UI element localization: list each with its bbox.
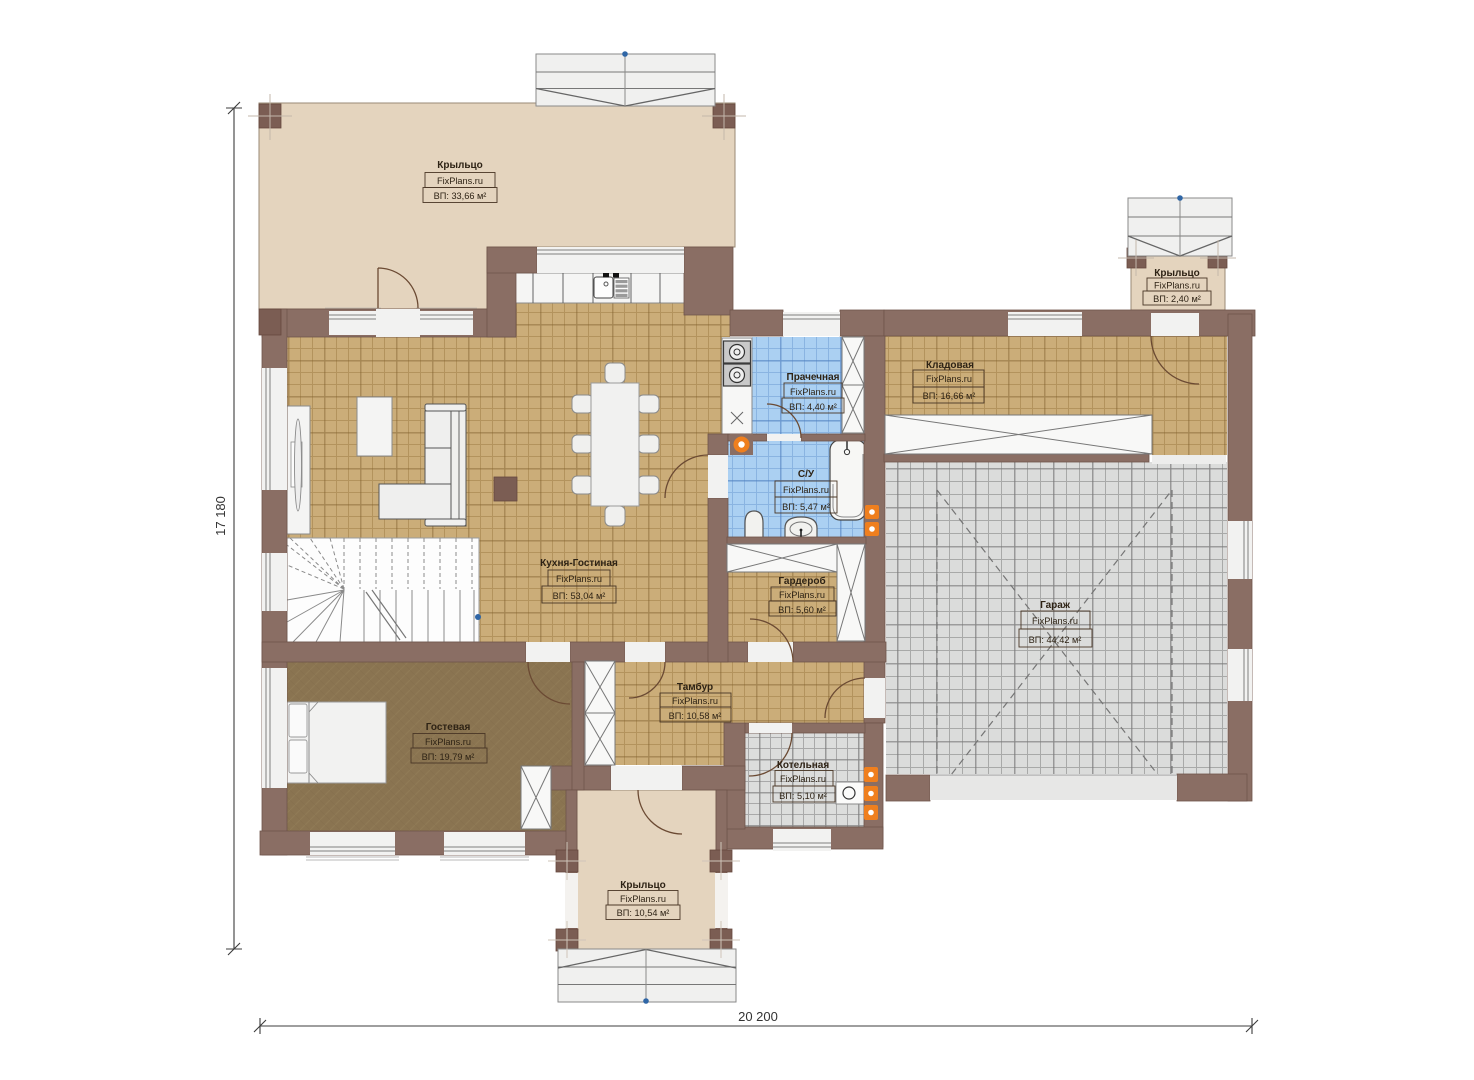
svg-text:ВП: 10,54 м²: ВП: 10,54 м²	[617, 908, 670, 918]
svg-text:ВП: 5,47 м²: ВП: 5,47 м²	[782, 502, 830, 512]
svg-text:Крыльцо: Крыльцо	[437, 160, 483, 171]
svg-text:FixPlans.ru: FixPlans.ru	[437, 176, 483, 186]
svg-text:ВП: 5,60 м²: ВП: 5,60 м²	[778, 605, 826, 615]
svg-text:17 180: 17 180	[213, 496, 228, 536]
svg-text:Гостевая: Гостевая	[426, 722, 471, 733]
svg-text:ВП: 2,40 м²: ВП: 2,40 м²	[1153, 294, 1201, 304]
svg-text:ВП: 4,40 м²: ВП: 4,40 м²	[789, 402, 837, 412]
svg-text:FixPlans.ru: FixPlans.ru	[1032, 616, 1078, 626]
svg-text:FixPlans.ru: FixPlans.ru	[783, 485, 829, 495]
svg-text:Тамбур: Тамбур	[677, 681, 713, 693]
svg-text:FixPlans.ru: FixPlans.ru	[556, 574, 602, 584]
svg-text:Прачечная: Прачечная	[787, 372, 840, 383]
svg-text:Гардероб: Гардероб	[778, 575, 825, 587]
svg-text:FixPlans.ru: FixPlans.ru	[779, 590, 825, 600]
svg-text:FixPlans.ru: FixPlans.ru	[926, 374, 972, 384]
svg-text:FixPlans.ru: FixPlans.ru	[1154, 281, 1200, 291]
svg-text:ВП: 53,04 м²: ВП: 53,04 м²	[553, 591, 606, 601]
svg-text:Кладовая: Кладовая	[926, 360, 974, 371]
svg-text:Гараж: Гараж	[1040, 600, 1071, 611]
svg-text:FixPlans.ru: FixPlans.ru	[780, 774, 826, 784]
svg-text:ВП: 5,10 м²: ВП: 5,10 м²	[779, 791, 827, 801]
svg-text:FixPlans.ru: FixPlans.ru	[790, 387, 836, 397]
svg-text:FixPlans.ru: FixPlans.ru	[425, 737, 471, 747]
svg-text:FixPlans.ru: FixPlans.ru	[672, 696, 718, 706]
svg-text:Кухня-Гостиная: Кухня-Гостиная	[540, 558, 618, 569]
svg-text:Крыльцо: Крыльцо	[620, 880, 666, 891]
svg-text:Крыльцо: Крыльцо	[1154, 268, 1200, 279]
svg-text:20 200: 20 200	[738, 1009, 778, 1024]
svg-text:ВП: 19,79 м²: ВП: 19,79 м²	[422, 752, 475, 762]
svg-text:FixPlans.ru: FixPlans.ru	[620, 894, 666, 904]
svg-text:ВП: 44,42 м²: ВП: 44,42 м²	[1029, 635, 1082, 645]
svg-text:Котельная: Котельная	[777, 760, 830, 771]
svg-text:ВП: 10,58 м²: ВП: 10,58 м²	[669, 711, 722, 721]
svg-text:С/У: С/У	[798, 469, 815, 480]
svg-text:ВП: 33,66 м²: ВП: 33,66 м²	[434, 191, 487, 201]
svg-text:ВП: 16,66 м²: ВП: 16,66 м²	[923, 391, 976, 401]
